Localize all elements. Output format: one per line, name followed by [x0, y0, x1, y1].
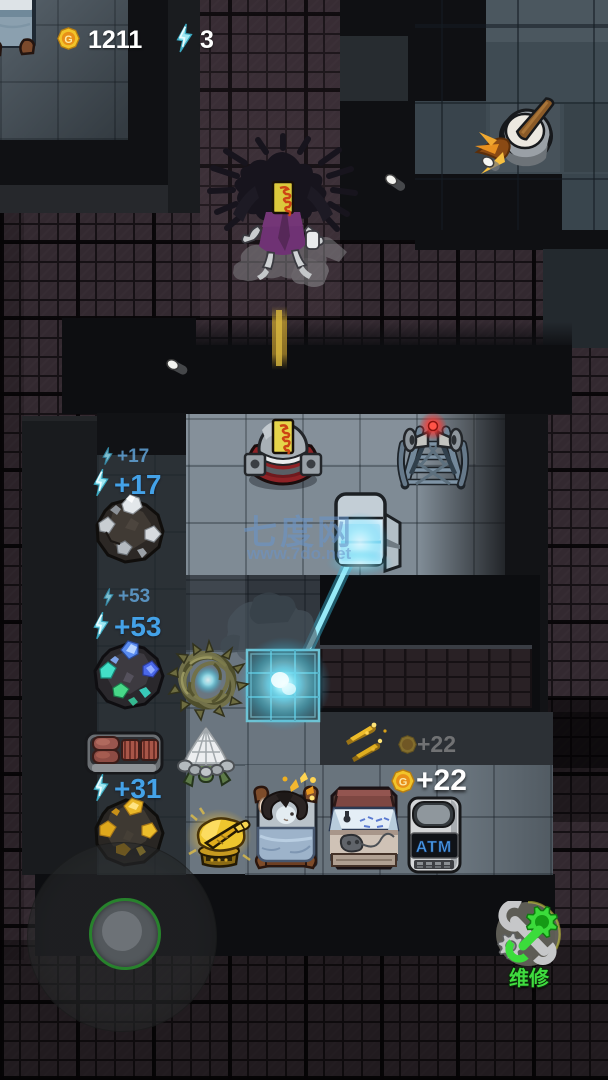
svg-text:G: G	[399, 777, 408, 789]
svg-text:G: G	[64, 34, 72, 46]
svg-text:ATM: ATM	[416, 839, 452, 856]
